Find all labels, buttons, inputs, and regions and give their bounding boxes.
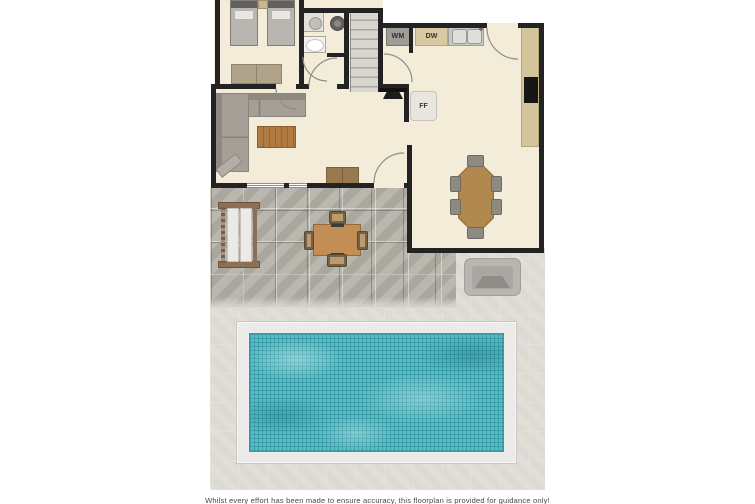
floorplan-canvas: WM DW FF bbox=[0, 0, 755, 504]
wall bbox=[381, 23, 487, 28]
wall bbox=[409, 23, 413, 53]
nightstand bbox=[258, 0, 268, 9]
wall bbox=[337, 84, 349, 89]
patio-chair bbox=[304, 231, 314, 250]
washing-machine: WM bbox=[386, 27, 410, 46]
wall bbox=[299, 0, 304, 88]
wall bbox=[344, 8, 349, 88]
wall bbox=[299, 8, 383, 13]
patio-chair bbox=[327, 254, 347, 267]
dresser bbox=[231, 64, 282, 84]
dishwasher-label: DW bbox=[426, 33, 438, 40]
wall bbox=[215, 0, 220, 88]
patio-chair bbox=[357, 231, 368, 250]
wall bbox=[307, 183, 374, 188]
sink-basin bbox=[467, 29, 482, 44]
patio-table-edge bbox=[331, 224, 344, 227]
bed-headboard bbox=[231, 1, 257, 8]
dining-chair bbox=[491, 199, 502, 215]
staircase bbox=[350, 10, 380, 92]
bathtub-basin bbox=[306, 39, 324, 52]
bathtub bbox=[302, 36, 326, 53]
toilet bbox=[330, 16, 345, 31]
bed-pillow bbox=[234, 10, 254, 20]
bed-pillow bbox=[271, 10, 291, 20]
sun-lounger bbox=[216, 200, 262, 270]
lounger-left-rail bbox=[221, 207, 225, 263]
wall bbox=[539, 23, 544, 253]
window bbox=[247, 183, 284, 188]
tv-under-stairs bbox=[379, 88, 407, 92]
dining-chair bbox=[467, 227, 484, 239]
dishwasher-counter: DW bbox=[415, 26, 448, 46]
wall bbox=[404, 183, 409, 188]
toilet-lid bbox=[334, 20, 341, 27]
wall bbox=[299, 53, 303, 57]
patio-table bbox=[313, 224, 361, 256]
single-bed bbox=[267, 0, 295, 46]
dining-table-top bbox=[459, 167, 493, 227]
wall bbox=[304, 84, 309, 89]
wall bbox=[211, 84, 276, 89]
dining-chair bbox=[491, 176, 502, 192]
lounger-cushion bbox=[240, 208, 252, 262]
dining-chair bbox=[467, 155, 484, 167]
dining-table bbox=[458, 166, 494, 228]
wall bbox=[211, 183, 247, 188]
lounger-cushion bbox=[227, 208, 239, 262]
wall bbox=[407, 145, 412, 253]
fridge-freezer: FF bbox=[410, 91, 437, 121]
bathroom-vanity bbox=[303, 12, 324, 32]
barbecue bbox=[464, 258, 521, 296]
single-bed bbox=[230, 0, 258, 46]
wall bbox=[211, 84, 216, 188]
disclaimer-text: Whilst every effort has been made to ens… bbox=[0, 496, 755, 504]
dining-chair bbox=[450, 176, 461, 192]
fridge-freezer-label: FF bbox=[419, 103, 428, 110]
lounger-right-rail bbox=[253, 207, 257, 263]
washing-machine-label: WM bbox=[391, 33, 404, 40]
bed-headboard bbox=[268, 1, 294, 8]
tv-right-wall bbox=[524, 77, 538, 103]
sink-basin bbox=[452, 29, 467, 44]
coffee-table bbox=[257, 126, 296, 148]
sink-basin bbox=[309, 17, 322, 30]
wall bbox=[407, 248, 544, 253]
dining-chair bbox=[450, 199, 461, 215]
patio-fade bbox=[210, 297, 456, 308]
window bbox=[289, 183, 307, 188]
swimming-pool bbox=[249, 333, 504, 452]
wall bbox=[327, 53, 349, 57]
patio-chair bbox=[329, 211, 346, 224]
kitchen-sink-counter bbox=[448, 25, 484, 46]
wall bbox=[378, 8, 383, 92]
